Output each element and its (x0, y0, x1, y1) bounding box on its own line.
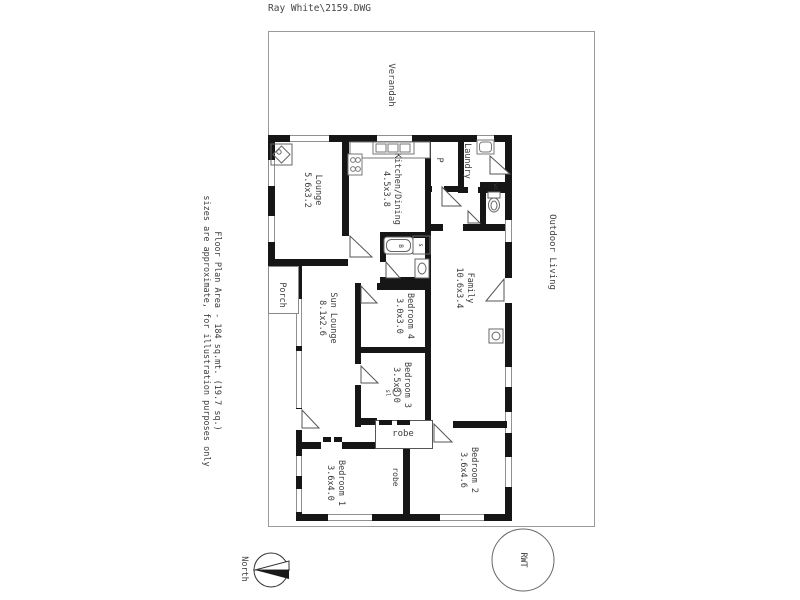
north-arrow-icon (253, 553, 290, 587)
family-label: Family 10.6x3.4 (453, 243, 475, 333)
north-label: North (238, 544, 250, 594)
vanity-icon (415, 259, 429, 278)
toilet-icon (488, 192, 500, 212)
outdoor-living-label: Outdoor Living (546, 202, 558, 302)
bedroom4-label: Bedroom 4 3.0x3.0 (393, 276, 415, 356)
heater-icon (489, 329, 503, 343)
bedroom3-sl-label: sl (383, 386, 391, 400)
laundry-label: Laundry (461, 131, 473, 191)
pantry-label: P (433, 150, 445, 170)
bath-letter: B (396, 238, 404, 254)
laundry-trough-icon (477, 140, 494, 154)
lounge-label: Lounge 5.6x3.2 (301, 150, 323, 230)
robe-rear-label: robe (376, 428, 430, 440)
rwt-label: RWT (517, 540, 529, 580)
bedroom3-label: Bedroom 3 3.5x3.0 (390, 345, 412, 425)
porch-label: Porch (276, 265, 288, 325)
verandah-label: Verandah (385, 45, 397, 125)
kitchen-dining-label: Kitchen/Dining 4.5x3.8 (380, 144, 402, 234)
bedroom1-label: Bedroom 1 3.6x4.0 (324, 443, 346, 523)
sun-lounge-label: Sun Lounge 8.1x2.6 (316, 273, 338, 363)
wc-label: wc (491, 179, 499, 195)
robe-front-label: robe (390, 457, 402, 497)
fireplace-icon (271, 144, 292, 165)
bedroom2-label: Bedroom 2 3.6x4.6 (457, 430, 479, 510)
floorplan-page: Ray White\2159.DWG Floor Plan Area - 184… (0, 0, 800, 600)
shower-letter: s (416, 237, 424, 253)
stove-icon (348, 154, 362, 175)
